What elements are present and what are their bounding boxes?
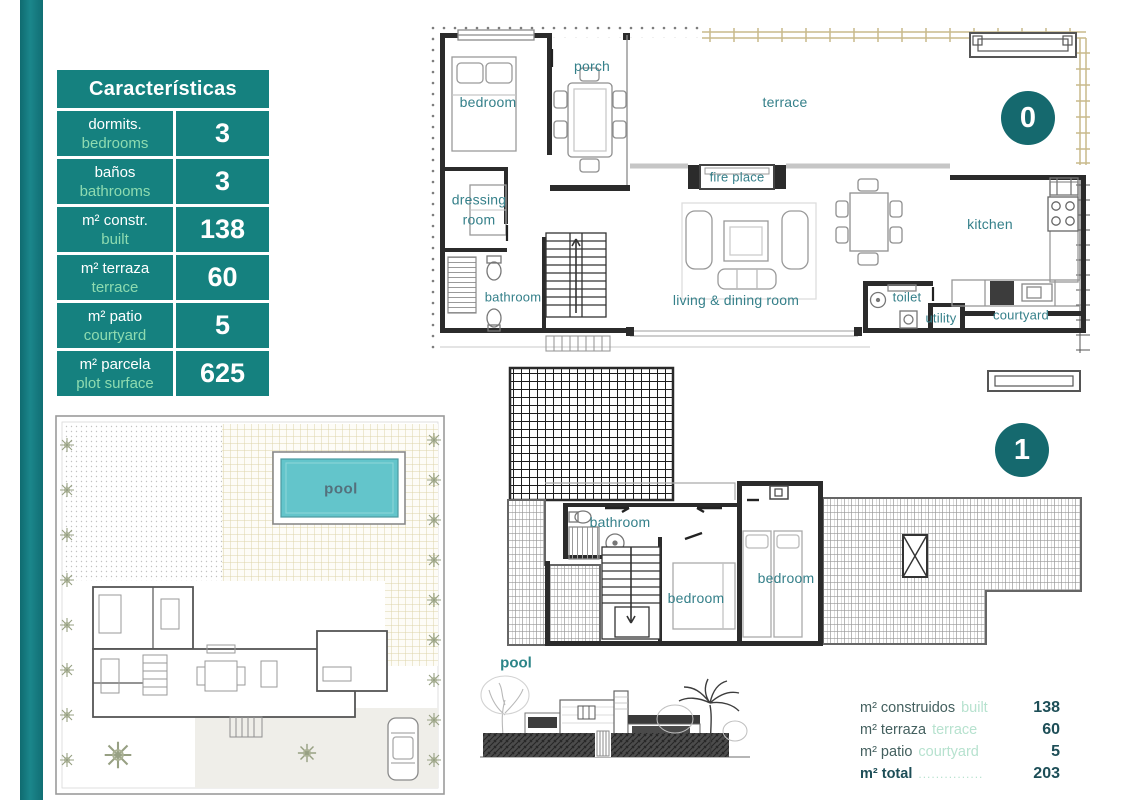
characteristics-title: Características <box>57 70 269 108</box>
floor-1-badge: 1 <box>995 423 1049 477</box>
floor-1-drawing <box>505 365 1090 650</box>
site-plan-drawing <box>55 415 445 795</box>
room-label-utility: utility <box>925 311 956 326</box>
row-plot-label: m² parcela plot surface <box>57 351 173 396</box>
room-label-kitchen: kitchen <box>967 216 1013 232</box>
room-label-living-dining: living & dining room <box>673 292 799 308</box>
room-label-porch: porch <box>574 58 610 74</box>
room-label-bathroom-1: bathroom <box>590 514 651 530</box>
plan-sheet: Características dormits. bedrooms 3 baño… <box>0 0 1136 800</box>
row-terrace-value: 60 <box>176 255 269 300</box>
summary-row-patio: m² patio courtyard 5 <box>860 743 1060 765</box>
room-label-bedroom-1: bedroom <box>668 590 725 606</box>
room-label-courtyard: courtyard <box>993 308 1049 323</box>
elevation-sketch: pool <box>465 645 765 795</box>
room-label-fire-place: fire place <box>710 170 765 185</box>
elevation-pool-label: pool <box>500 655 532 672</box>
room-label-bedroom-2: bedroom <box>758 570 815 586</box>
row-built-value: 138 <box>176 207 269 252</box>
room-label-dressing-room: dressing room <box>441 190 517 229</box>
summary-row-total: m² total ............... 203 <box>860 765 1060 787</box>
row-terrace-label: m² terraza terrace <box>57 255 173 300</box>
row-bedrooms-label: dormits. bedrooms <box>57 111 173 156</box>
summary-row-terrace: m² terraza terrace 60 <box>860 721 1060 743</box>
floor-plan-1: bathroom bedroom bedroom 1 <box>505 365 1090 650</box>
row-plot-value: 625 <box>176 351 269 396</box>
floor-plan-0: bedroom porch terrace fire place dressin… <box>430 25 1090 355</box>
summary-row-built: m² construidos built 138 <box>860 699 1060 721</box>
room-label-terrace: terrace <box>763 94 808 110</box>
room-label-bedroom: bedroom <box>460 94 517 110</box>
row-bathrooms-value: 3 <box>176 159 269 204</box>
row-bedrooms-value: 3 <box>176 111 269 156</box>
characteristics-table: Características dormits. bedrooms 3 baño… <box>57 70 269 396</box>
left-accent-bar <box>20 0 43 800</box>
row-bathrooms-label: baños bathrooms <box>57 159 173 204</box>
room-label-bathroom-0: bathroom <box>485 290 542 305</box>
area-summary: m² construidos built 138 m² terraza terr… <box>860 699 1060 787</box>
row-built-label: m² constr. built <box>57 207 173 252</box>
room-label-toilet: toilet <box>893 290 922 305</box>
floor-0-badge: 0 <box>1001 91 1055 145</box>
site-plan: pool <box>55 415 445 795</box>
row-patio-value: 5 <box>176 303 269 348</box>
row-patio-label: m² patio courtyard <box>57 303 173 348</box>
site-pool-label: pool <box>324 481 358 498</box>
